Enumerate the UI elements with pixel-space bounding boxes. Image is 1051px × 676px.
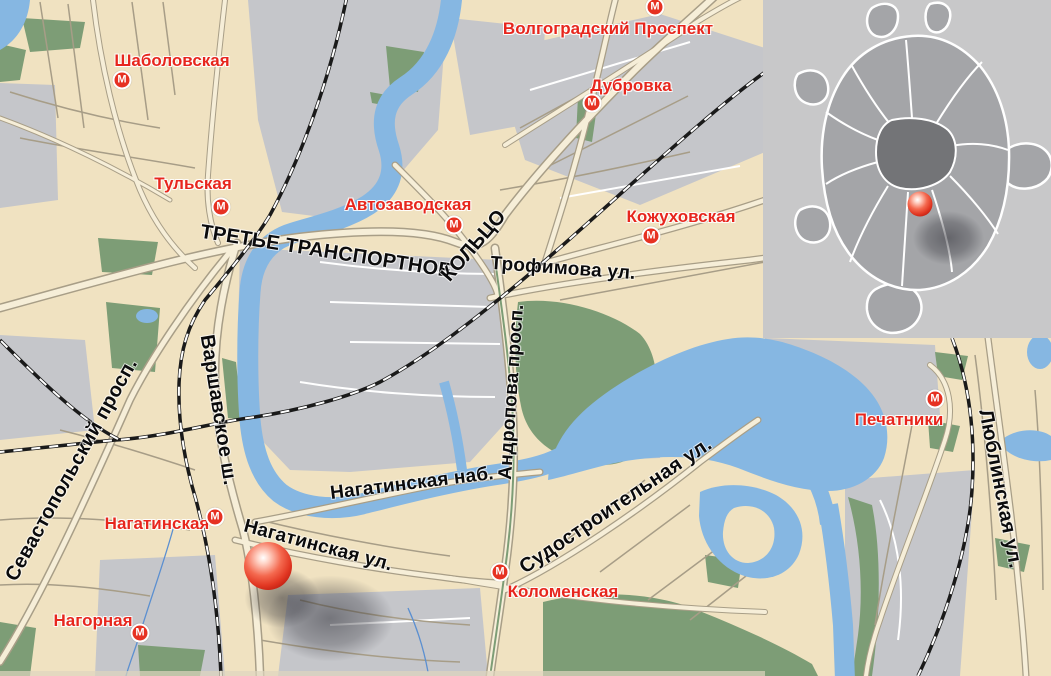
metro-station-icon[interactable]: М [491,563,510,582]
metro-station-label: Кожуховская [626,207,735,227]
metro-station-label: Тульская [154,174,232,194]
metro-station-label: Печатники [855,410,944,430]
metro-m-glyph: М [449,220,458,231]
metro-station-label: Дубровка [590,76,671,96]
metro-m-glyph: М [117,75,126,86]
metro-m-glyph: М [216,202,225,213]
metro-m-glyph: М [495,567,504,578]
metro-m-glyph: М [646,231,655,242]
metro-station-label: Коломенская [508,582,619,602]
metro-station-icon[interactable]: М [206,508,225,527]
inset-location-marker[interactable] [908,192,933,217]
metro-station-icon[interactable]: М [926,390,945,409]
metro-m-glyph: М [587,98,596,109]
metro-station-label: Нагорная [54,611,133,631]
metro-station-icon[interactable]: М [642,227,661,246]
metro-station-label: Шаболовская [114,51,229,71]
metro-m-glyph: М [135,628,144,639]
moscow-map: ТРЕТЬЕ ТРАНСПОРТНОЕКОЛЬЦОТрофимова ул.Се… [0,0,1051,676]
map-edge-strip [0,671,765,676]
metro-station-label: Волгоградский Проспект [503,19,713,39]
metro-m-glyph: М [210,512,219,523]
metro-station-label: Нагатинская [105,514,210,534]
metro-station-icon[interactable]: М [212,198,231,217]
inset-map [763,0,1051,338]
location-marker[interactable] [244,542,292,590]
metro-m-glyph: М [930,394,939,405]
metro-m-glyph: М [650,2,659,13]
metro-station-icon[interactable]: М [131,624,150,643]
metro-station-icon[interactable]: М [445,216,464,235]
metro-station-label: Автозаводская [345,195,472,215]
metro-station-icon[interactable]: М [583,94,602,113]
metro-station-icon[interactable]: М [113,71,132,90]
